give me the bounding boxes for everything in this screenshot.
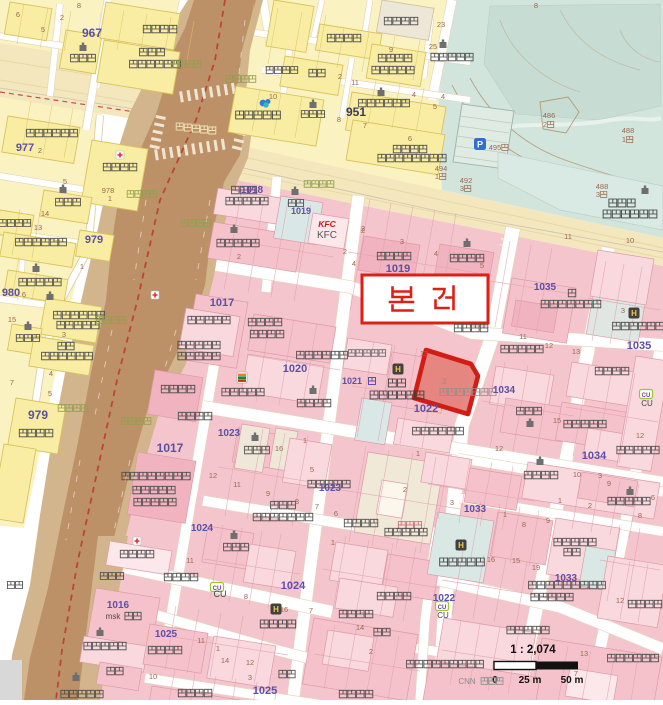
svg-text:16: 16 [487, 555, 495, 564]
svg-text:KFC: KFC [317, 230, 337, 241]
svg-text:488: 488 [622, 126, 635, 135]
svg-text:12: 12 [495, 444, 503, 453]
svg-text:10: 10 [269, 92, 277, 101]
svg-text:1021: 1021 [342, 376, 362, 386]
svg-text:16: 16 [280, 605, 288, 614]
svg-text:3: 3 [450, 498, 454, 507]
svg-text:1024: 1024 [191, 523, 214, 534]
svg-text:8: 8 [522, 520, 526, 529]
svg-text:13: 13 [580, 649, 588, 658]
svg-text:11: 11 [351, 78, 359, 87]
svg-text:4: 4 [49, 369, 53, 378]
svg-text:CU: CU [438, 605, 447, 611]
svg-text:1: 1 [503, 510, 507, 519]
svg-text:8: 8 [295, 497, 299, 506]
svg-text:3: 3 [62, 330, 66, 339]
svg-text:967: 967 [82, 26, 102, 40]
svg-text:1017: 1017 [210, 297, 234, 309]
svg-text:1 : 2,074: 1 : 2,074 [510, 644, 556, 656]
svg-text:1034: 1034 [582, 450, 607, 462]
svg-text:977: 977 [16, 142, 34, 154]
svg-text:1035: 1035 [627, 340, 651, 352]
svg-text:1024: 1024 [281, 580, 306, 592]
svg-text:9: 9 [546, 516, 550, 525]
svg-text:979: 979 [28, 408, 48, 422]
svg-text:1: 1 [558, 496, 562, 505]
svg-text:11: 11 [233, 480, 241, 489]
svg-text:14: 14 [41, 209, 49, 218]
svg-text:2: 2 [60, 13, 64, 22]
svg-text:10: 10 [626, 236, 634, 245]
svg-text:13: 13 [34, 223, 42, 232]
svg-text:8: 8 [244, 592, 248, 601]
svg-text:3: 3 [460, 184, 464, 193]
svg-text:P: P [477, 140, 483, 150]
svg-text:CU: CU [642, 393, 651, 399]
svg-text:1023: 1023 [218, 428, 241, 439]
svg-text:1019: 1019 [386, 263, 410, 275]
svg-text:12: 12 [209, 471, 217, 480]
svg-text:7: 7 [315, 502, 319, 511]
svg-text:11: 11 [186, 556, 194, 565]
svg-text:H: H [273, 605, 279, 614]
svg-text:1025: 1025 [155, 629, 178, 640]
svg-text:7: 7 [574, 669, 578, 678]
svg-text:1023: 1023 [319, 483, 342, 494]
svg-text:1018: 1018 [241, 185, 264, 196]
svg-text:980: 980 [2, 287, 20, 299]
svg-text:1: 1 [303, 436, 307, 445]
svg-text:8: 8 [77, 1, 81, 10]
svg-text:1019: 1019 [291, 206, 311, 216]
svg-text:13: 13 [572, 347, 580, 356]
svg-text:5: 5 [48, 389, 52, 398]
svg-text:1022: 1022 [414, 403, 438, 415]
svg-text:1033: 1033 [555, 573, 578, 584]
svg-text:3: 3 [400, 237, 404, 246]
svg-text:6: 6 [334, 509, 338, 518]
svg-text:5: 5 [310, 465, 314, 474]
svg-text:KFC: KFC [318, 219, 336, 229]
svg-text:15: 15 [512, 556, 520, 565]
svg-text:8: 8 [337, 115, 341, 124]
svg-text:6: 6 [408, 134, 412, 143]
svg-text:9: 9 [607, 479, 611, 488]
svg-text:15: 15 [553, 416, 561, 425]
svg-text:3: 3 [248, 673, 252, 682]
svg-text:5: 5 [480, 261, 484, 270]
svg-text:2: 2 [403, 485, 407, 494]
svg-text:6: 6 [16, 10, 20, 19]
svg-text:1: 1 [80, 262, 84, 271]
svg-text:9: 9 [266, 489, 270, 498]
svg-text:14: 14 [221, 656, 229, 665]
svg-text:1035: 1035 [534, 282, 557, 293]
svg-text:1034: 1034 [493, 385, 516, 396]
svg-text:16: 16 [275, 444, 283, 453]
svg-text:1: 1 [622, 135, 626, 144]
svg-text:H: H [395, 365, 401, 374]
svg-text:25 m: 25 m [519, 675, 542, 686]
svg-text:11: 11 [519, 332, 527, 341]
svg-text:7: 7 [309, 606, 313, 615]
svg-text:2: 2 [369, 647, 373, 656]
svg-text:2: 2 [343, 247, 347, 256]
svg-text:6: 6 [22, 290, 26, 299]
svg-text:15: 15 [8, 315, 16, 324]
svg-text:3: 3 [442, 377, 447, 386]
svg-text:5: 5 [63, 177, 67, 186]
svg-text:4: 4 [434, 249, 438, 258]
svg-text:951: 951 [346, 105, 366, 119]
svg-text:1: 1 [108, 194, 112, 203]
svg-text:1: 1 [435, 172, 439, 181]
svg-text:1: 1 [416, 449, 420, 458]
svg-text:3: 3 [621, 306, 625, 315]
svg-text:10: 10 [573, 470, 581, 479]
svg-text:12: 12 [246, 658, 254, 667]
svg-text:H: H [458, 541, 464, 550]
svg-text:CNN: CNN [458, 677, 476, 686]
svg-text:msk: msk [106, 612, 122, 621]
svg-text:11: 11 [197, 636, 205, 645]
svg-text:2: 2 [361, 224, 365, 233]
svg-text:23: 23 [437, 20, 445, 29]
svg-text:25: 25 [429, 42, 437, 51]
svg-text:H: H [631, 309, 637, 318]
svg-text:12: 12 [616, 596, 624, 605]
svg-text:2: 2 [588, 501, 592, 510]
svg-text:8: 8 [638, 511, 642, 520]
svg-text:19: 19 [532, 563, 540, 572]
svg-text:11: 11 [564, 232, 572, 241]
svg-text:2: 2 [338, 72, 342, 81]
svg-text:4: 4 [441, 92, 445, 101]
svg-text:8: 8 [534, 1, 538, 10]
svg-text:3: 3 [596, 190, 600, 199]
svg-text:1017: 1017 [157, 441, 184, 455]
svg-text:7: 7 [10, 378, 14, 387]
svg-text:CU: CU [214, 589, 227, 599]
svg-text:1016: 1016 [107, 600, 130, 611]
svg-text:14: 14 [356, 623, 364, 632]
svg-text:5: 5 [41, 25, 45, 34]
svg-text:4: 4 [412, 90, 416, 99]
svg-text:2: 2 [543, 120, 547, 129]
svg-text:1020: 1020 [283, 363, 307, 375]
svg-text:3: 3 [598, 471, 602, 480]
svg-text:2: 2 [38, 146, 42, 155]
svg-text:486: 486 [543, 111, 556, 120]
svg-text:13: 13 [420, 349, 428, 358]
svg-text:50 m: 50 m [561, 675, 584, 686]
svg-text:1025: 1025 [253, 685, 277, 697]
svg-text:2: 2 [237, 252, 241, 261]
svg-text:1: 1 [216, 644, 220, 653]
svg-text:6: 6 [651, 493, 655, 502]
svg-text:1: 1 [331, 538, 335, 547]
svg-text:CU: CU [641, 399, 653, 408]
svg-text:4: 4 [352, 259, 356, 268]
svg-text:1033: 1033 [464, 504, 487, 515]
svg-text:7: 7 [363, 121, 367, 130]
svg-text:CU: CU [437, 611, 449, 620]
svg-text:979: 979 [85, 234, 103, 246]
svg-text:9: 9 [389, 45, 393, 54]
svg-text:10: 10 [149, 672, 157, 681]
svg-text:495: 495 [489, 143, 502, 152]
svg-text:12: 12 [636, 431, 644, 440]
svg-text:12: 12 [545, 341, 553, 350]
svg-text:1022: 1022 [433, 593, 456, 604]
svg-text:5: 5 [433, 102, 437, 111]
